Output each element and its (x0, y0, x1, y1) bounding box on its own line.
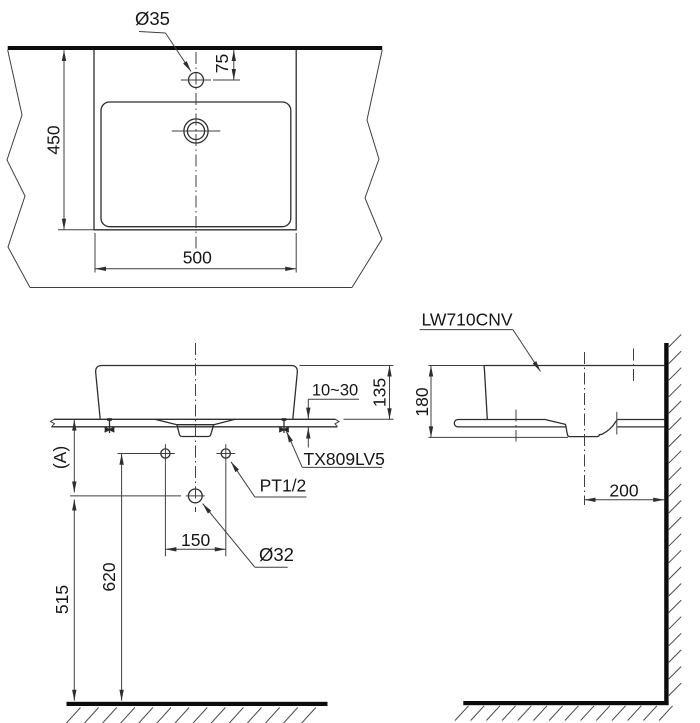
svg-text:620: 620 (99, 562, 119, 591)
svg-text:Ø35: Ø35 (135, 8, 170, 29)
svg-text:PT1/2: PT1/2 (260, 475, 307, 495)
svg-text:10~30: 10~30 (312, 381, 358, 399)
svg-text:450: 450 (44, 125, 64, 154)
svg-text:200: 200 (609, 481, 638, 501)
svg-text:180: 180 (412, 387, 432, 416)
svg-text:75: 75 (212, 54, 232, 73)
svg-text:TX809LV5: TX809LV5 (304, 449, 385, 469)
svg-text:135: 135 (370, 378, 390, 407)
svg-text:515: 515 (52, 585, 72, 614)
svg-text:(A): (A) (50, 446, 70, 469)
svg-text:150: 150 (181, 530, 210, 550)
svg-text:500: 500 (183, 248, 212, 268)
svg-text:Ø32: Ø32 (259, 544, 294, 565)
svg-text:LW710CNV: LW710CNV (422, 309, 513, 329)
